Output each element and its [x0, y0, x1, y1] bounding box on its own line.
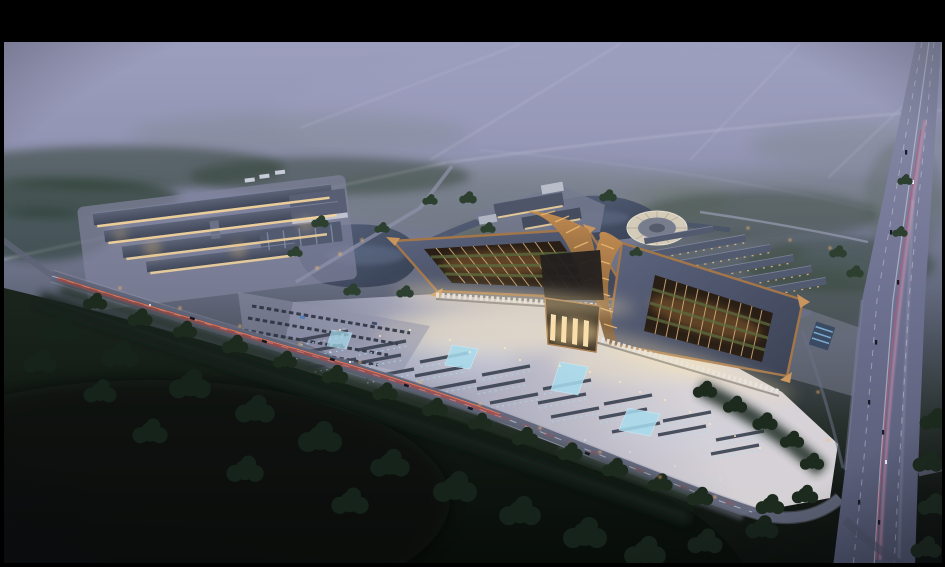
vignette [0, 42, 945, 563]
aerial-scene [0, 0, 945, 567]
architectural-rendering [0, 0, 945, 567]
